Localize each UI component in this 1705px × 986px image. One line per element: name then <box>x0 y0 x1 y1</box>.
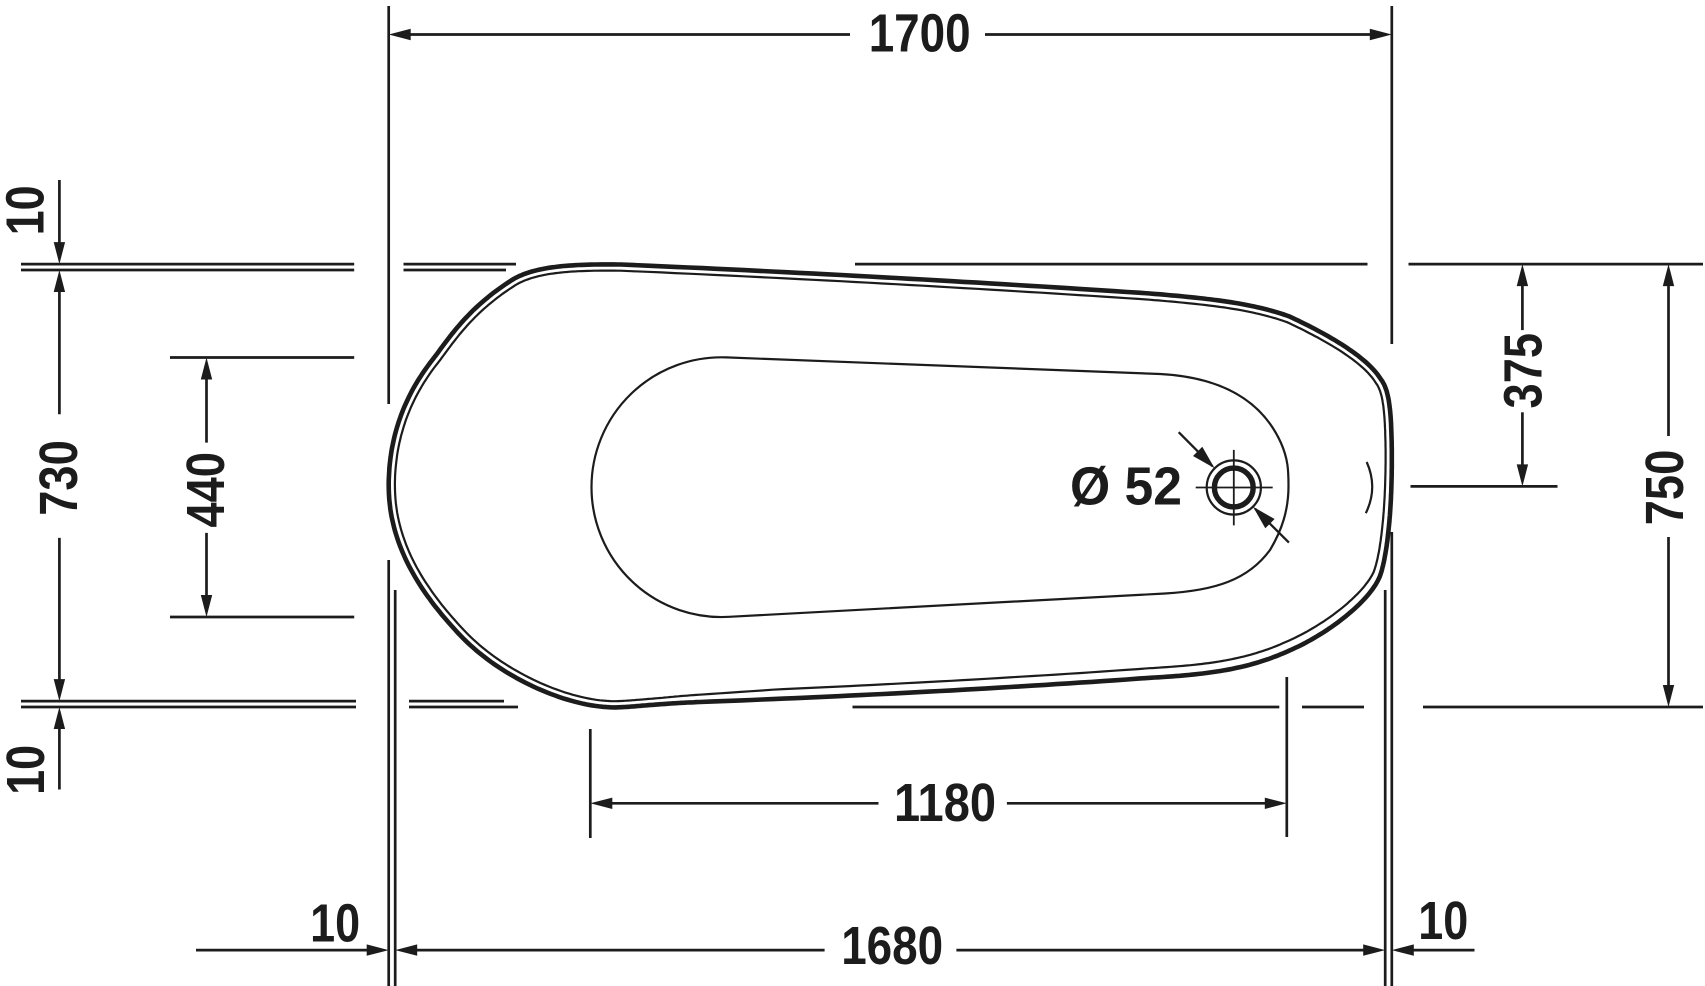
svg-text:10: 10 <box>1418 891 1468 951</box>
svg-text:Ø 52: Ø 52 <box>1070 456 1182 516</box>
svg-text:1700: 1700 <box>869 4 971 64</box>
svg-text:375: 375 <box>1494 333 1554 409</box>
svg-text:1180: 1180 <box>894 773 996 833</box>
svg-text:440: 440 <box>176 452 236 528</box>
svg-text:10: 10 <box>0 185 55 235</box>
svg-text:730: 730 <box>29 440 89 516</box>
svg-text:10: 10 <box>310 894 360 954</box>
svg-text:10: 10 <box>0 745 56 795</box>
svg-text:1680: 1680 <box>841 916 943 976</box>
svg-text:750: 750 <box>1635 450 1695 526</box>
